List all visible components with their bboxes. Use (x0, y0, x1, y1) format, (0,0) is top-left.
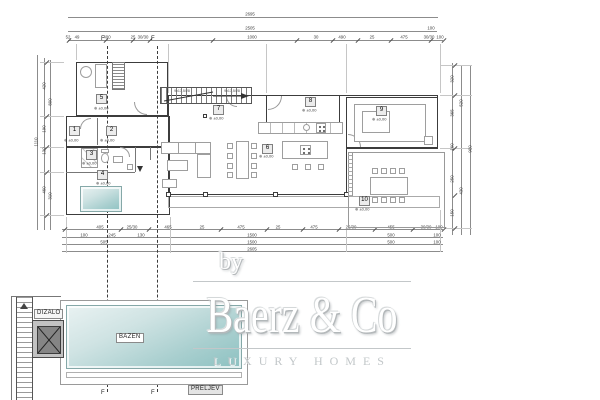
overflow-channel (66, 372, 242, 378)
watermark-by: by (219, 249, 243, 276)
watermark-rule (193, 348, 411, 349)
pool-label: BAZEN (116, 333, 144, 343)
elevator-label: DIZALO (34, 309, 63, 319)
floor-plan-sheet: 2695250510052494002530/30100030490254753… (0, 0, 600, 400)
exterior-stairs (16, 297, 33, 400)
watermark-brand: Baerz & Co (193, 284, 411, 345)
overflow-label: PRELJEV (188, 385, 223, 395)
watermark: by Baerz & Co LUXURY HOMES (193, 251, 411, 371)
stairs-up-arrow (20, 303, 28, 309)
elevator-cab (37, 326, 61, 354)
watermark-tagline: LUXURY HOMES (193, 354, 411, 369)
elevator-shaft (32, 320, 64, 358)
site-boundary (11, 296, 12, 400)
elevator-x-icon (38, 327, 60, 353)
watermark-rule (193, 281, 411, 282)
